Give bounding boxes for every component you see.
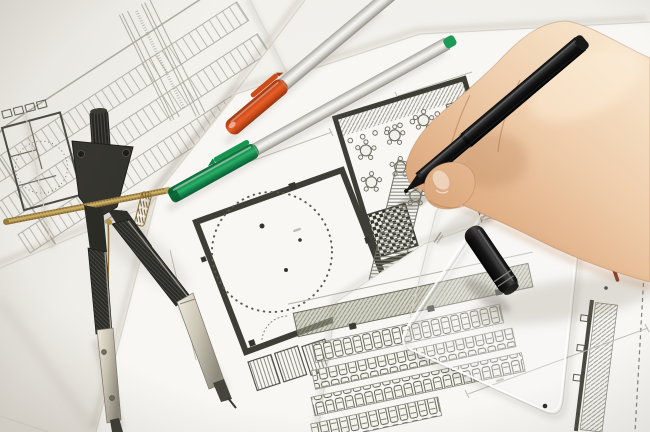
photo-architect-desk xyxy=(0,0,650,432)
scene-canvas xyxy=(0,0,650,432)
vignette xyxy=(0,0,650,432)
